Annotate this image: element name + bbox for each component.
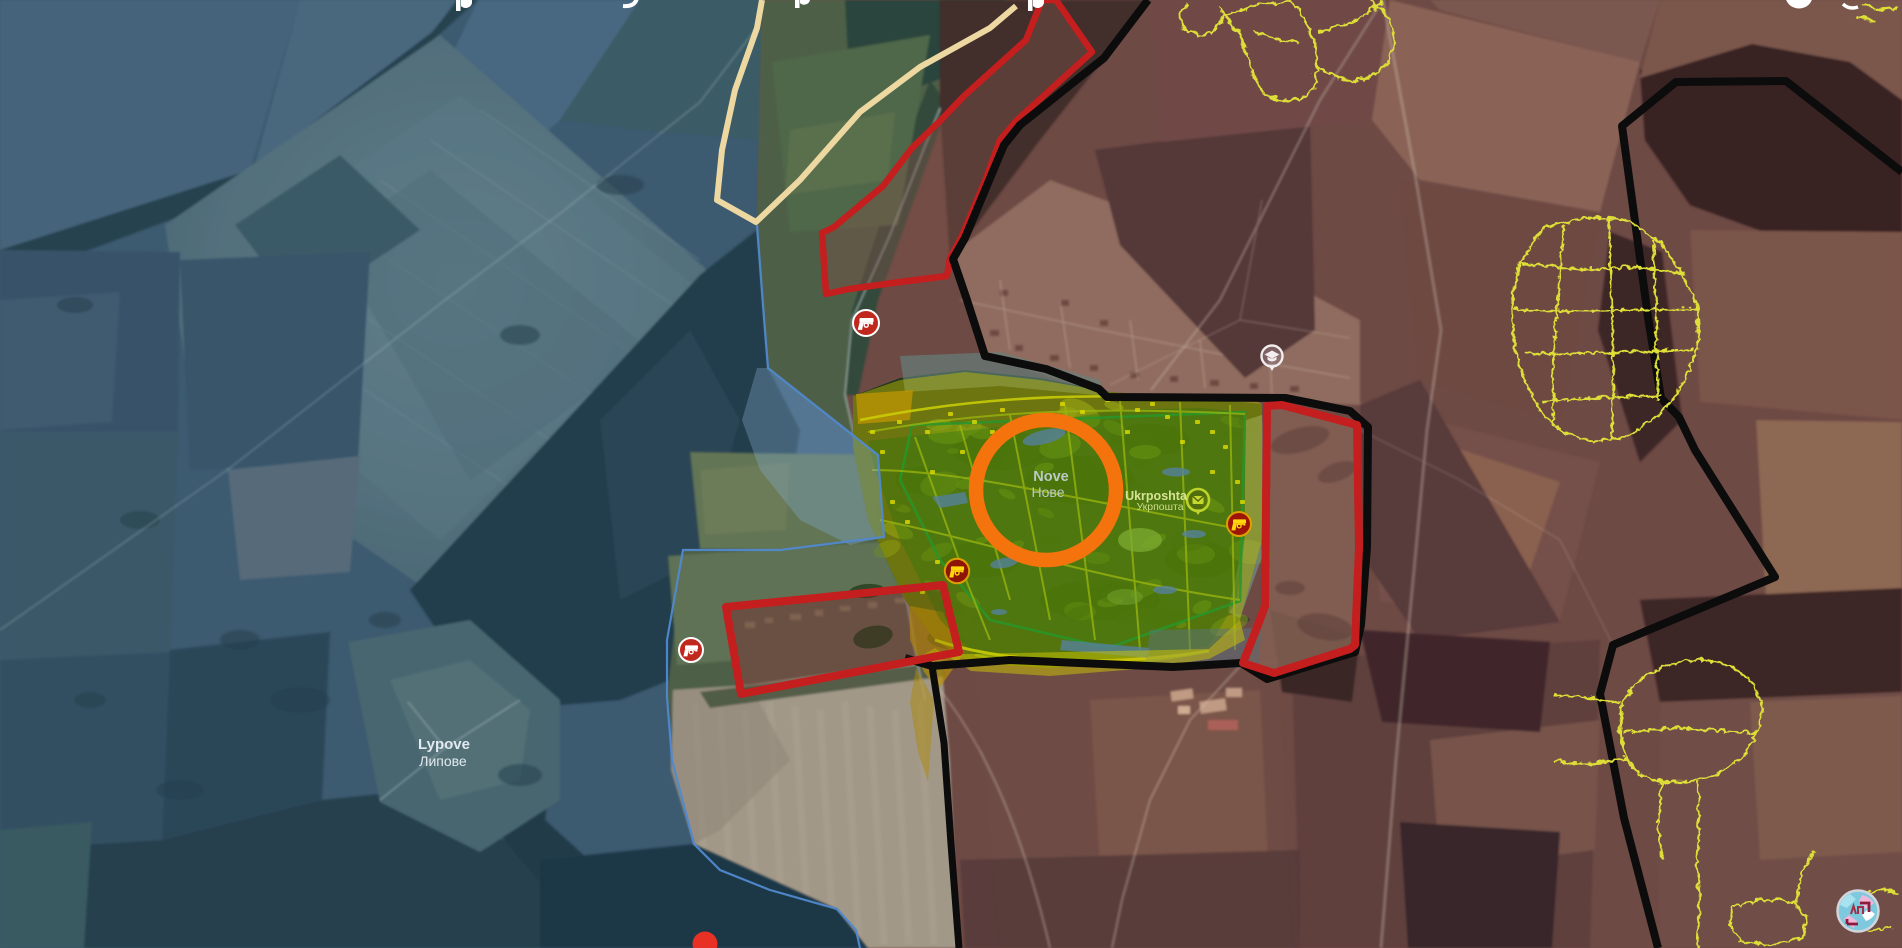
svg-text:Нове: Нове <box>1032 484 1065 500</box>
svg-text:Nove: Nove <box>1033 469 1068 485</box>
svg-text:Укрпошта: Укрпошта <box>1136 501 1183 513</box>
svg-text:Липове: Липове <box>419 753 467 769</box>
svg-text:Lypove: Lypove <box>418 736 470 753</box>
